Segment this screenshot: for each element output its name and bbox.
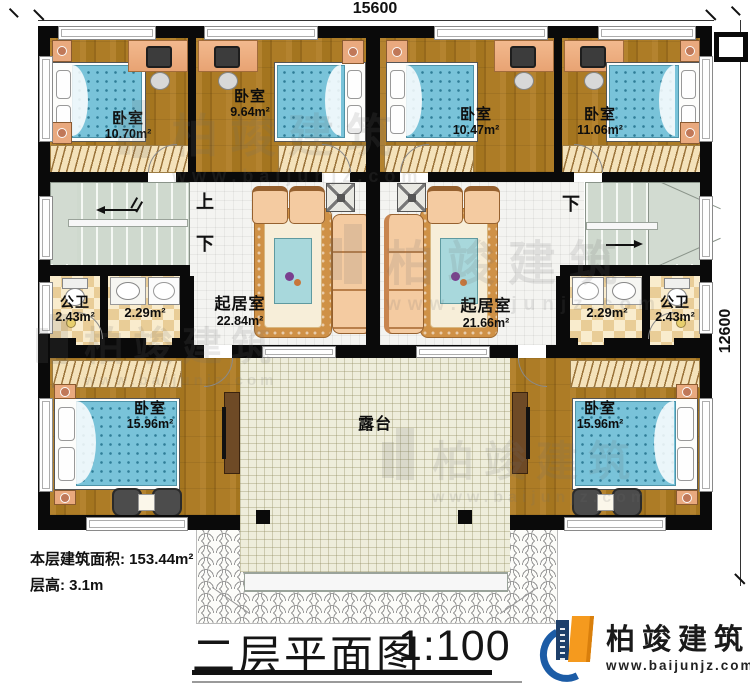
- side-table: [138, 494, 155, 511]
- terrace-railing: [244, 572, 508, 592]
- pillow: [677, 407, 694, 441]
- window: [699, 398, 713, 492]
- wall-segment: [350, 172, 400, 182]
- armchair: [252, 186, 288, 224]
- company-logo: 柏竣建筑 www.baijunjz.com: [540, 614, 750, 674]
- tv-cabinet: [224, 392, 240, 474]
- wall-segment: [188, 26, 196, 182]
- coffee-table: [440, 238, 478, 304]
- desk-chair: [150, 72, 170, 90]
- lounge-chair: [152, 488, 182, 517]
- wall-segment: [38, 265, 190, 276]
- sink: [612, 282, 636, 300]
- stair-handrail: [68, 219, 188, 227]
- title-underline-thin: [192, 681, 522, 683]
- pillow: [677, 447, 694, 481]
- wall-segment: [674, 338, 712, 345]
- wall-segment: [560, 338, 578, 345]
- stair-direction-arrow: [634, 240, 643, 248]
- dimension-label-right: 12600: [717, 296, 735, 366]
- room-area: 2.43m²: [45, 310, 105, 324]
- room-label-wash-right: 2.29m²: [572, 306, 642, 321]
- room-area: 15.96m²: [545, 417, 655, 431]
- terrace-column: [458, 510, 472, 524]
- room-area: 10.70m²: [90, 127, 166, 141]
- room-label-bath-right: 公卫 2.43m²: [645, 294, 705, 324]
- pillow: [681, 70, 696, 99]
- wall-segment: [560, 265, 712, 276]
- terrace-floor: [240, 358, 510, 572]
- window: [39, 398, 53, 492]
- logo-url-text: www.baijunjz.com: [606, 658, 750, 673]
- nightstand-lamp: [52, 40, 72, 62]
- room-name: 公卫: [45, 294, 105, 310]
- stair-arrow-shaft: [105, 209, 137, 211]
- logo-tower-orange: [568, 616, 594, 662]
- room-label-living-left: 起居室 22.84m²: [197, 296, 283, 329]
- computer-monitor: [146, 46, 172, 68]
- room-name: 公卫: [645, 294, 705, 310]
- window: [39, 196, 53, 260]
- window: [564, 517, 666, 531]
- nightstand-lamp: [676, 490, 698, 505]
- room-area: 10.47m²: [438, 123, 514, 137]
- wall-segment: [602, 172, 712, 182]
- dimension-tick: [34, 9, 45, 20]
- room-label-bedroom-tmr: 卧室 10.47m²: [438, 106, 514, 138]
- logo-tower-blue: [556, 620, 569, 660]
- room-name: 露台: [349, 416, 401, 434]
- room-name: 起居室: [443, 298, 529, 316]
- pillow: [347, 70, 362, 99]
- pillow: [58, 447, 75, 481]
- party-wall: [366, 26, 380, 358]
- stair-direction-arrow: [96, 206, 105, 214]
- room-area: 11.06m²: [562, 123, 638, 137]
- wall-segment: [172, 338, 190, 345]
- room-area: 2.29m²: [110, 306, 180, 321]
- wardrobe: [384, 145, 474, 173]
- window: [434, 26, 548, 40]
- room-name: 起居室: [197, 296, 283, 314]
- washing-machine: [572, 277, 604, 305]
- room-area: 15.96m²: [95, 417, 205, 431]
- wall-segment: [428, 172, 574, 182]
- dimension-line-top: [38, 20, 714, 21]
- logo-brand-text: 柏竣建筑: [606, 616, 750, 658]
- room-area: 2.43m²: [645, 310, 705, 324]
- dimension-line-right: [740, 20, 741, 586]
- sofa: [384, 214, 424, 334]
- room-label-bath-left: 公卫 2.43m²: [45, 294, 105, 324]
- computer-monitor: [580, 46, 606, 68]
- stair-handrail: [586, 222, 658, 230]
- wall-segment: [604, 338, 648, 345]
- room-label-terrace: 露台: [349, 416, 401, 434]
- wall-segment: [38, 338, 76, 345]
- wall-segment: [176, 172, 322, 182]
- tv-cabinet: [512, 392, 528, 474]
- armchair: [289, 186, 325, 224]
- terrace-column: [256, 510, 270, 524]
- window: [58, 26, 156, 40]
- room-label-living-right: 起居室 21.66m²: [443, 298, 529, 331]
- pillow: [347, 105, 362, 134]
- side-table: [597, 494, 614, 511]
- nightstand-lamp: [676, 384, 698, 399]
- room-label-bedroom-tml: 卧室 9.64m²: [212, 88, 288, 120]
- plan-scale: 1:100: [398, 622, 511, 671]
- room-label-wash-left: 2.29m²: [110, 306, 180, 321]
- room-area: 9.64m²: [212, 105, 288, 119]
- room-label-bedroom-br: 卧室 15.96m²: [545, 400, 655, 432]
- computer-monitor: [214, 46, 240, 68]
- wall-segment: [38, 345, 204, 358]
- pillow: [390, 70, 405, 99]
- stair-down-label: 下: [196, 230, 214, 256]
- room-area: 22.84m²: [197, 314, 283, 328]
- desk-chair: [584, 72, 604, 90]
- corner-tv: [326, 183, 355, 212]
- wall-segment: [554, 26, 562, 182]
- lounge-chair: [612, 488, 642, 517]
- wall-segment: [102, 338, 146, 345]
- sliding-door: [416, 346, 490, 358]
- room-label-bedroom-tl: 卧室 10.70m²: [90, 110, 166, 142]
- footer-floor-area: 本层建筑面积: 153.44m²: [30, 548, 193, 569]
- room-name: 卧室: [90, 110, 166, 127]
- window: [699, 196, 713, 260]
- footer-floor-height: 层高: 3.1m: [30, 574, 103, 595]
- room-name: 卧室: [438, 106, 514, 123]
- window: [39, 56, 53, 142]
- wall-segment: [556, 276, 570, 345]
- dimension-label-top: 15600: [300, 0, 450, 18]
- nightstand-lamp: [386, 40, 408, 64]
- nightstand-lamp: [54, 490, 76, 505]
- wall-segment: [180, 276, 194, 345]
- stair-down-label: 下: [562, 190, 580, 216]
- sink: [116, 282, 140, 300]
- pillow: [390, 105, 405, 134]
- chimney: [714, 32, 748, 62]
- window: [86, 517, 188, 531]
- desk-chair: [514, 72, 534, 90]
- nightstand-lamp: [680, 122, 700, 144]
- nightstand-lamp: [680, 40, 700, 62]
- plan-title: 二层平面图: [192, 622, 422, 684]
- wall-segment: [546, 345, 712, 358]
- dimension-tick: [9, 8, 19, 18]
- dimension-tick: [731, 6, 741, 16]
- armchair: [464, 186, 500, 224]
- computer-monitor: [510, 46, 536, 68]
- coffee-table: [274, 238, 312, 304]
- room-area: 2.29m²: [572, 306, 642, 321]
- armchair: [427, 186, 463, 224]
- wall-segment: [38, 172, 148, 182]
- room-area: 21.66m²: [443, 316, 529, 330]
- pillow: [58, 407, 75, 441]
- window: [699, 56, 713, 142]
- room-name: 卧室: [95, 400, 205, 417]
- room-label-bedroom-tr: 卧室 11.06m²: [562, 106, 638, 138]
- nightstand-lamp: [52, 122, 72, 144]
- room-name: 卧室: [212, 88, 288, 105]
- nightstand-lamp: [54, 384, 76, 399]
- sliding-door: [262, 346, 336, 358]
- stair-up-label: 上: [196, 188, 214, 214]
- nightstand-lamp: [342, 40, 364, 64]
- company-logo-icon: [540, 614, 598, 674]
- title-underline: [192, 670, 492, 675]
- room-label-bedroom-bl: 卧室 15.96m²: [95, 400, 205, 432]
- dimension-tick: [706, 9, 717, 20]
- pillow: [56, 70, 71, 99]
- corner-tv: [397, 183, 426, 212]
- floor-plan: 15600 12600: [0, 0, 750, 690]
- stair-arrow-shaft: [606, 244, 634, 246]
- window: [204, 26, 318, 40]
- washing-machine: [148, 277, 180, 305]
- room-name: 卧室: [545, 400, 655, 417]
- room-name: 卧室: [562, 106, 638, 123]
- window: [598, 26, 696, 40]
